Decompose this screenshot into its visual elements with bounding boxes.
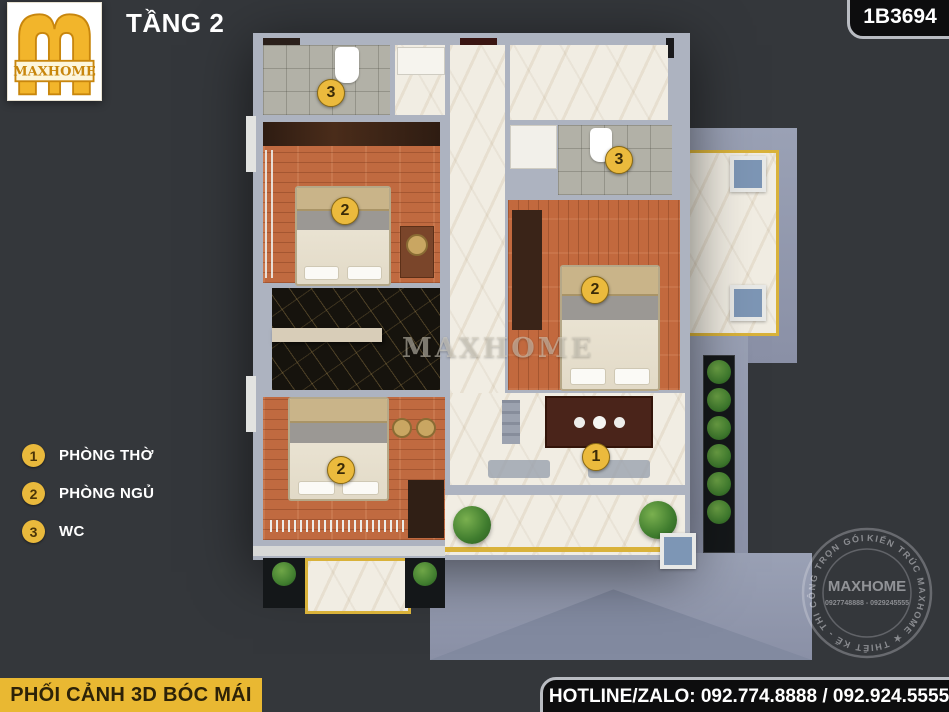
legend-label: PHÒNG NGỦ (59, 485, 154, 502)
legend-item-wc: 3 WC (22, 520, 154, 543)
vanity-counter (510, 125, 557, 169)
room-marker-wc-top: 3 (317, 79, 345, 107)
bed-pillow (347, 266, 382, 280)
altar-plate (614, 417, 625, 428)
bed-pillow (614, 368, 651, 385)
view-title-badge: PHỐI CẢNH 3D BÓC MÁI (0, 678, 262, 712)
wall-trim-bottom-left (253, 546, 445, 556)
wall-ledge-left-lower (246, 376, 256, 432)
room-marker-bedroom-bottom-left: 2 (327, 456, 355, 484)
plant-icon (272, 562, 296, 586)
laundry-counter (397, 47, 445, 75)
bed-pillow (570, 368, 607, 385)
roof-hip-facet (430, 553, 812, 660)
hotline-badge: HOTLINE/ZALO: 092.774.8888 / 092.924.555… (540, 677, 949, 712)
shelf (272, 328, 382, 342)
plant-icon (707, 472, 731, 496)
altar-plate (593, 416, 606, 429)
plant-icon (413, 562, 437, 586)
wardrobe-strip (263, 122, 440, 146)
planter-left-balcony (263, 558, 305, 608)
toilet-icon (335, 47, 359, 83)
stool (392, 418, 412, 438)
skylight-middle (730, 285, 766, 321)
planter-strip-right (703, 355, 735, 553)
plant-icon (707, 388, 731, 412)
room-marker-bedroom-right: 2 (581, 276, 609, 304)
bed-pillow (304, 266, 339, 280)
plant-icon (707, 444, 731, 468)
stairs (502, 400, 520, 444)
skylight-bottom (660, 533, 696, 569)
legend-number-icon: 3 (22, 520, 45, 543)
legend-label: WC (59, 523, 85, 540)
room-marker-altar: 1 (582, 443, 610, 471)
bed-pillow (298, 481, 335, 495)
floor-label: TẦNG 2 (126, 8, 224, 39)
legend-item-phong-tho: 1 PHÒNG THỜ (22, 444, 154, 467)
wall-ledge-left-upper (246, 116, 256, 172)
closet-bottom-left (408, 480, 444, 538)
bed-blanket (562, 296, 658, 320)
legend-number-icon: 1 (22, 444, 45, 467)
logo-m-icon (19, 14, 90, 94)
legend-item-phong-ngu: 2 PHÒNG NGỦ (22, 482, 154, 505)
altar-rug (488, 460, 550, 478)
bed (560, 265, 660, 391)
stamp-phones: 0927748888 - 0929245555 (825, 600, 909, 607)
maxhome-stamp: KIẾN TRÚC MAXHOME ★ THIẾT KẾ - THI CÔNG … (792, 518, 942, 668)
legend-number-icon: 2 (22, 482, 45, 505)
bed-headboard (290, 399, 387, 423)
legend-label: PHÒNG THỜ (59, 447, 154, 464)
plant-icon (707, 500, 731, 524)
bed-headboard (562, 267, 658, 296)
desk-chair (406, 234, 428, 256)
stamp-brand: MAXHOME (828, 578, 906, 595)
room-marker-wc-right: 3 (605, 146, 633, 174)
balcony-left (305, 558, 411, 614)
altar-table (545, 396, 653, 448)
logo-brand-text: MAXHOME (13, 65, 96, 80)
maxhome-watermark: MAXHOME (402, 333, 594, 364)
roof-bottom (430, 553, 812, 660)
plant-icon (707, 416, 731, 440)
bed (288, 397, 389, 501)
maxhome-logo: MAXHOME (7, 2, 102, 101)
balcony-trim (445, 547, 685, 552)
clothes-rack (265, 150, 277, 278)
rug-fringe (270, 520, 405, 532)
planter-left-balcony (405, 558, 445, 608)
stool (416, 418, 436, 438)
drawing-code-badge: 1B3694 (847, 0, 949, 39)
maxhome-logo-mark: MAXHOME (8, 3, 101, 100)
plant-icon (707, 360, 731, 384)
bed-pillow (342, 481, 379, 495)
legend: 1 PHÒNG THỜ 2 PHÒNG NGỦ 3 WC (22, 444, 154, 543)
console-right-bedroom (512, 210, 542, 330)
skylight-top (730, 156, 766, 192)
tree-icon (453, 506, 491, 544)
room-marker-bedroom-top-left: 2 (331, 197, 359, 225)
altar-plate (574, 417, 585, 428)
room-dressing (510, 45, 668, 120)
bed-blanket (290, 423, 387, 443)
